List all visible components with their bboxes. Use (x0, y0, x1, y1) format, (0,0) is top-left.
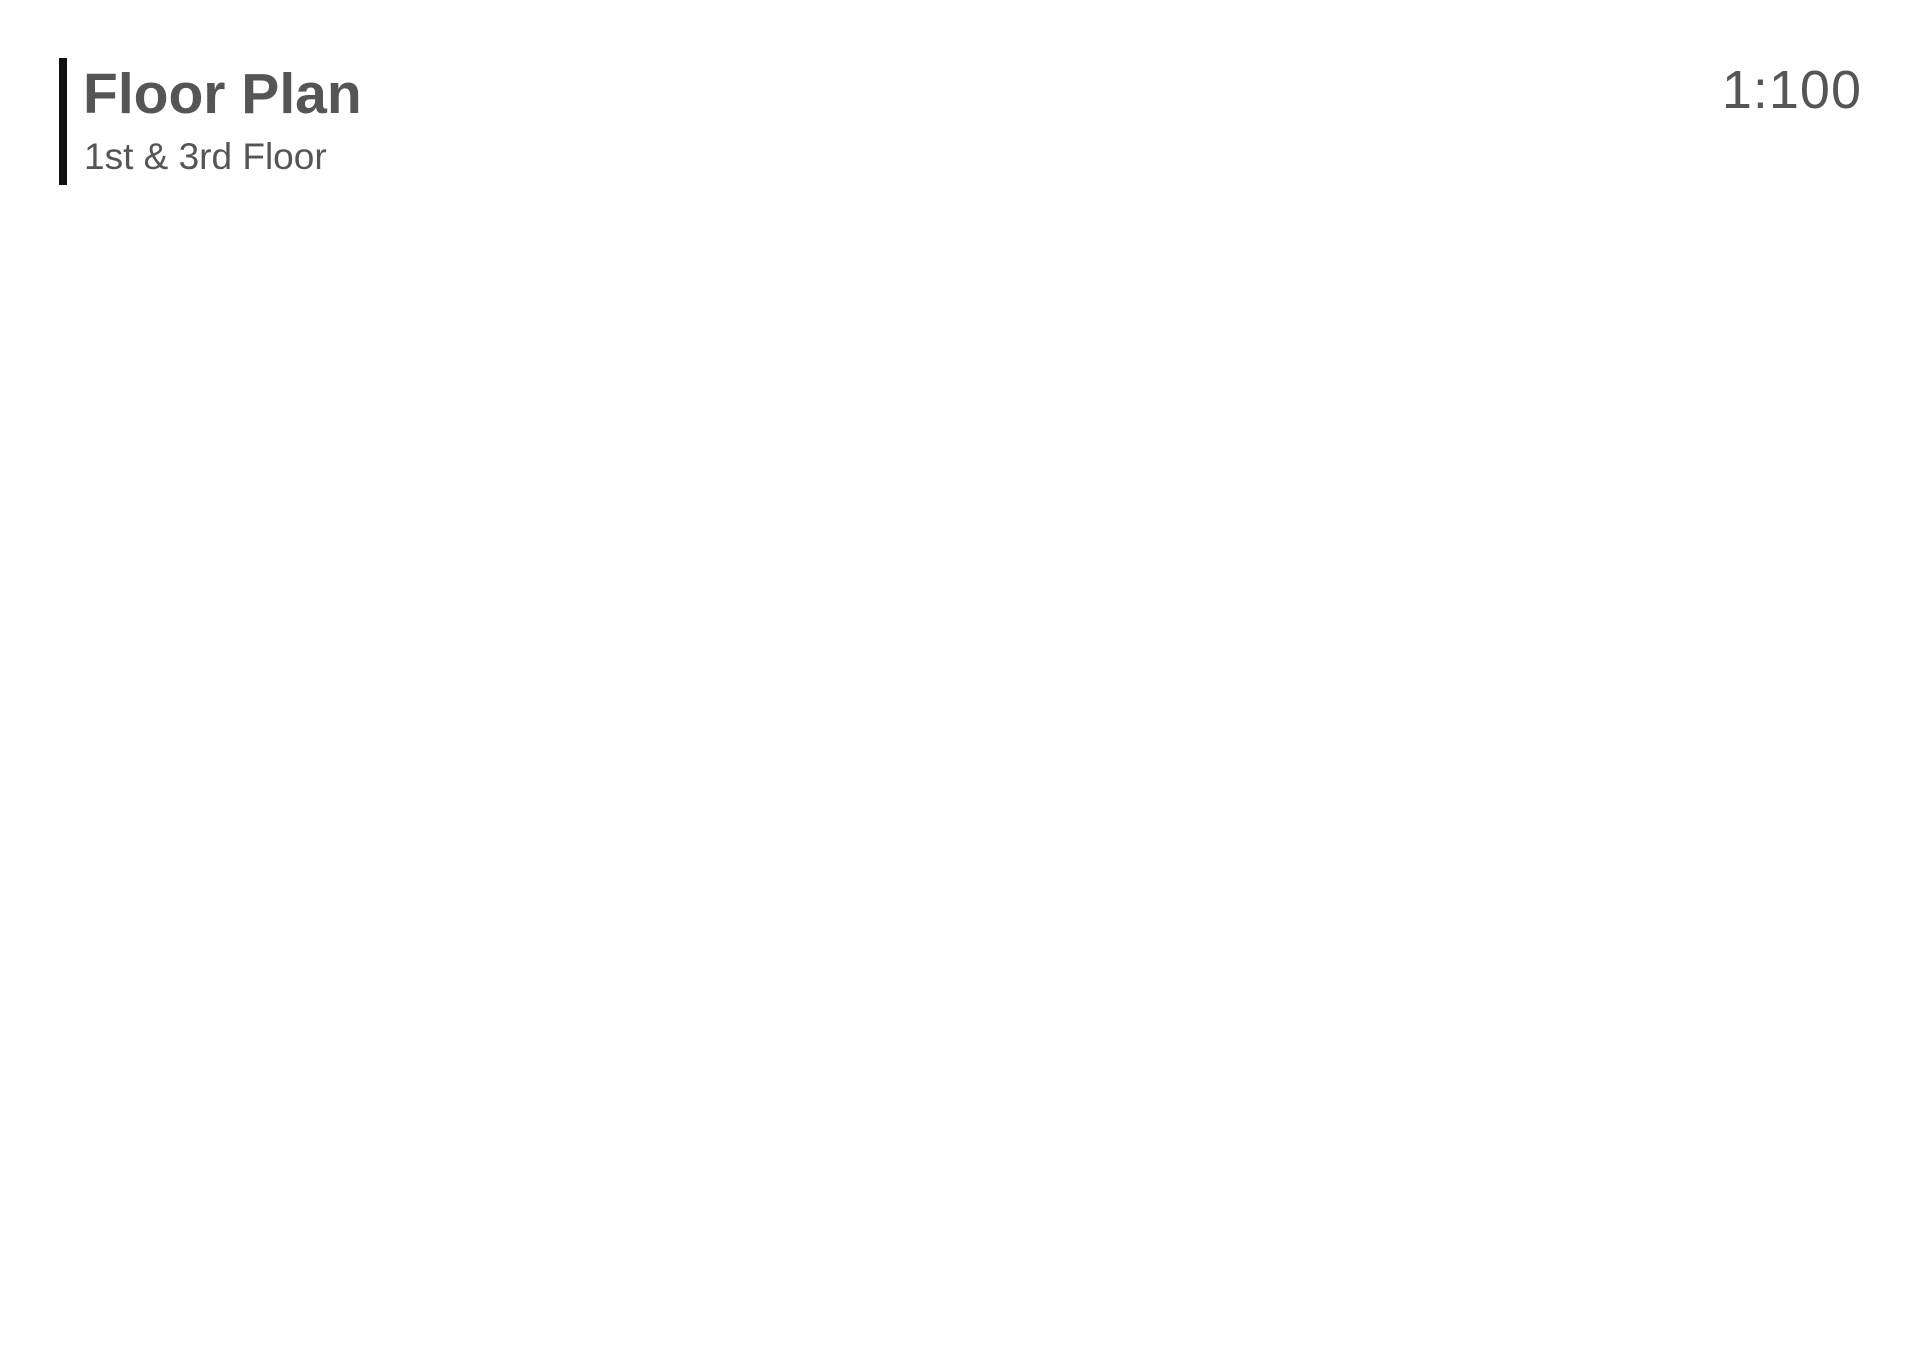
svg-text:Floor Plan: Floor Plan (83, 62, 362, 126)
svg-text:1:100: 1:100 (1722, 60, 1862, 120)
svg-text:1st & 3rd Floor: 1st & 3rd Floor (84, 136, 327, 177)
